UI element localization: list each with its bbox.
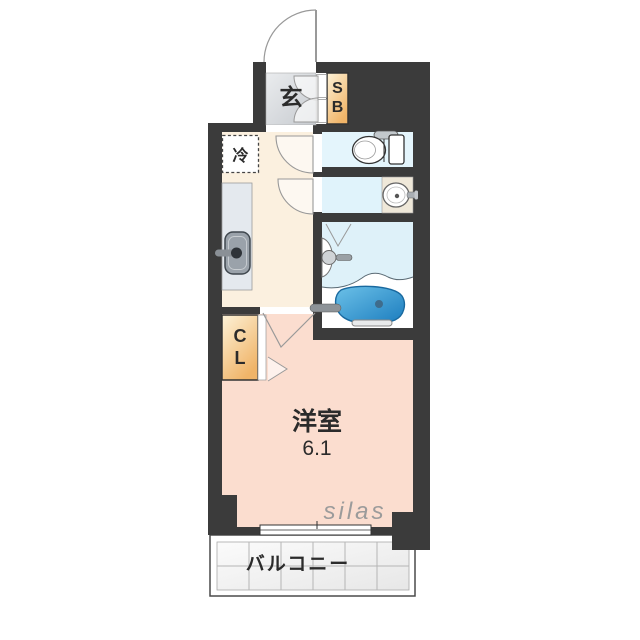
western-room-label: 洋室	[292, 407, 342, 436]
washbasin-drain	[395, 194, 399, 198]
wall-pillar	[392, 512, 430, 550]
wall-bottom-left	[208, 526, 260, 535]
western-room-size: 6.1	[302, 437, 331, 460]
entrance-threshold	[266, 125, 313, 132]
toilet-tank	[389, 135, 404, 164]
wall-right	[413, 62, 430, 512]
wall-bottom-left-block	[208, 495, 237, 527]
washbasin-faucet-handle	[415, 191, 419, 200]
bathtub-faucet-icon	[310, 304, 341, 312]
wall-bath-bottom	[313, 328, 430, 340]
watermark: silas	[323, 498, 386, 525]
closet-door-leaf	[258, 315, 266, 380]
shower-faucet-icon	[336, 255, 352, 261]
shoe-box-label-b: B	[332, 99, 344, 116]
closet-label-c: C	[234, 326, 247, 346]
shower-mixer-icon	[322, 251, 336, 265]
bathtub-handle	[352, 320, 392, 326]
toilet-door-gap	[313, 134, 322, 172]
entrance-door-gap	[266, 62, 316, 73]
washroom-door-gap	[313, 177, 322, 212]
shoe-box-label-s: S	[332, 80, 343, 97]
bathtub-icon	[336, 286, 405, 324]
floorplan-page: 玄 S B 冷 C L 洋室 6.1 バルコニー silas	[0, 0, 640, 640]
entrance-door	[264, 10, 316, 62]
entrance-label: 玄	[280, 84, 303, 110]
bathtub-drain	[375, 300, 383, 308]
wall-kitchen-top	[208, 123, 266, 132]
wall-left	[208, 123, 222, 535]
refrigerator-label: 冷	[232, 146, 248, 165]
entrance-door-arc	[264, 10, 316, 62]
balcony-label: バルコニー	[246, 553, 351, 575]
room-doorway-threshold	[260, 307, 313, 314]
closet-label-l: L	[235, 348, 246, 368]
toilet-icon	[353, 137, 386, 164]
kitchen-faucet-knob	[231, 248, 242, 259]
floorplan-drawing: 玄 S B 冷 C L 洋室 6.1 バルコニー silas	[0, 0, 640, 640]
